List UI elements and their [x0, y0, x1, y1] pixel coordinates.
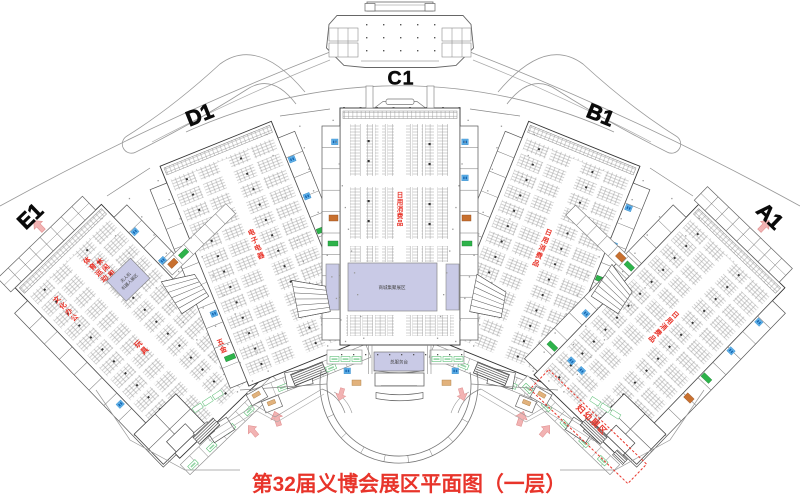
- svg-text:商城集聚展区: 商城集聚展区: [379, 284, 406, 291]
- svg-text:第32届义博会展区平面图（一层）: 第32届义博会展区平面图（一层）: [252, 472, 566, 496]
- svg-text:日用消费品: 日用消费品: [396, 191, 404, 227]
- svg-text:总服务台: 总服务台: [390, 359, 408, 366]
- svg-text:C1: C1: [388, 68, 415, 90]
